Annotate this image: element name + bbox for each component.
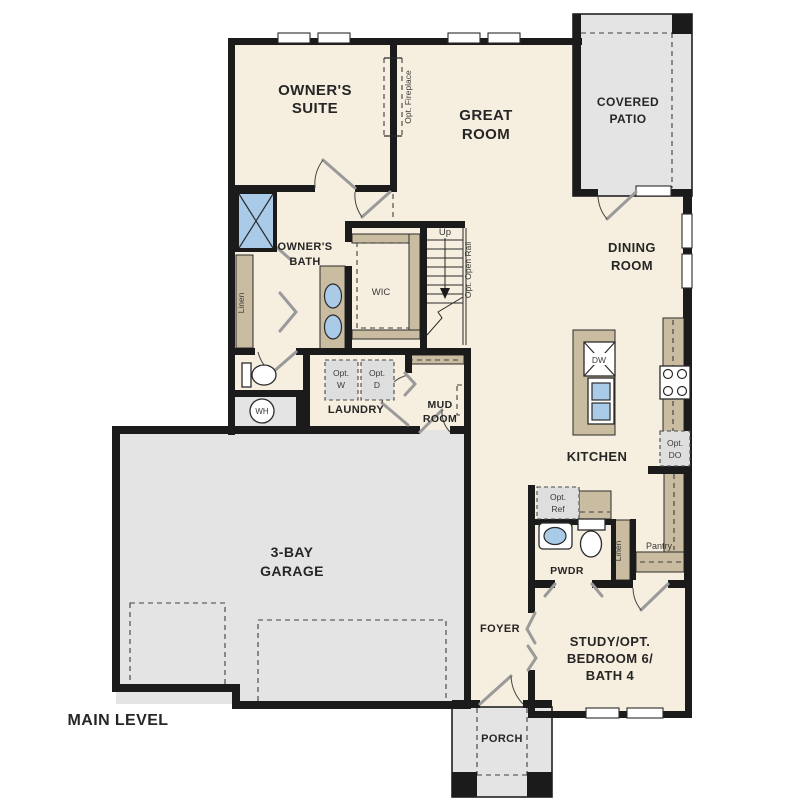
wc-toilet-bowl [252,365,276,385]
room-label-covered-patio-2: PATIO [610,112,647,126]
appliance-label-opt-w-1: Opt. [333,368,349,378]
appliance-label-opt-d-1: Opt. [369,368,385,378]
opt-double-oven-box [660,431,690,466]
appliance-label-opt-d-2: D [374,380,380,390]
room-label-foyer: FOYER [480,623,520,635]
pwdr-sink [544,528,566,545]
room-label-mud-room-1: MUD [427,399,452,411]
wc-toilet-tank [242,363,251,387]
ref-counter [579,491,611,519]
appliance-label-opt-ref-2: Ref [551,504,565,514]
room-label-owners-suite-2: SUITE [292,100,338,117]
room-label-covered-patio-1: COVERED [597,95,659,109]
patio-pillar [672,14,692,34]
room-label-porch: PORCH [481,733,523,745]
room-label-mud-room-2: ROOM [423,413,457,425]
annotation-linen-right: Linen [613,540,623,561]
porch-pillar-left [452,772,477,797]
annotation-opt-fireplace: Opt. Fireplace [403,70,413,124]
annotation-linen-left: Linen [236,292,246,313]
floor-plan-drawing: OWNER'S SUITE GREAT ROOM COVERED PATIO D… [0,0,810,810]
appliance-label-opt-do-2: DO [669,450,682,460]
room-label-pwdr: PWDR [550,565,584,577]
room-label-pantry: Pantry [646,541,673,551]
annotation-opt-open-rail: Opt. Open Rail [463,242,473,298]
room-label-study-3: BATH 4 [586,668,635,683]
room-label-study-1: STUDY/OPT. [570,634,651,649]
room-label-garage-2: GARAGE [260,563,324,579]
plan-level-label: MAIN LEVEL [68,712,169,729]
porch-pillar-right [527,772,552,797]
room-label-dining-room-1: DINING [608,240,656,255]
appliance-label-opt-ref-1: Opt. [550,492,566,502]
wic-shelf-bottom [352,330,420,339]
room-label-wic: WIC [372,287,391,298]
wic-shelf-right [409,234,420,339]
annotation-dw: DW [592,355,606,365]
room-label-great-room-2: ROOM [462,126,510,143]
room-label-owners-bath-2: BATH [289,256,320,268]
room-label-garage-1: 3-BAY [271,544,314,560]
room-label-owners-suite-1: OWNER'S [278,82,352,99]
pwdr-toilet-tank [578,519,605,530]
room-label-study-2: BEDROOM 6/ [567,651,653,666]
floor-plan-canvas: OWNER'S SUITE GREAT ROOM COVERED PATIO D… [0,0,810,810]
room-label-kitchen: KITCHEN [567,449,628,464]
annotation-wh: WH [255,407,269,416]
annotation-up: Up [439,227,451,238]
room-label-great-room-1: GREAT [459,107,512,124]
bath-sink-1 [325,284,342,308]
appliance-label-opt-do-1: Opt. [667,438,683,448]
pwdr-toilet-bowl [581,531,602,557]
bath-sink-2 [325,315,342,339]
room-label-dining-room-2: ROOM [611,258,653,273]
room-label-owners-bath-1: OWNER'S [278,241,333,253]
room-label-laundry: LAUNDRY [328,404,384,416]
appliance-label-opt-w-2: W [337,380,345,390]
